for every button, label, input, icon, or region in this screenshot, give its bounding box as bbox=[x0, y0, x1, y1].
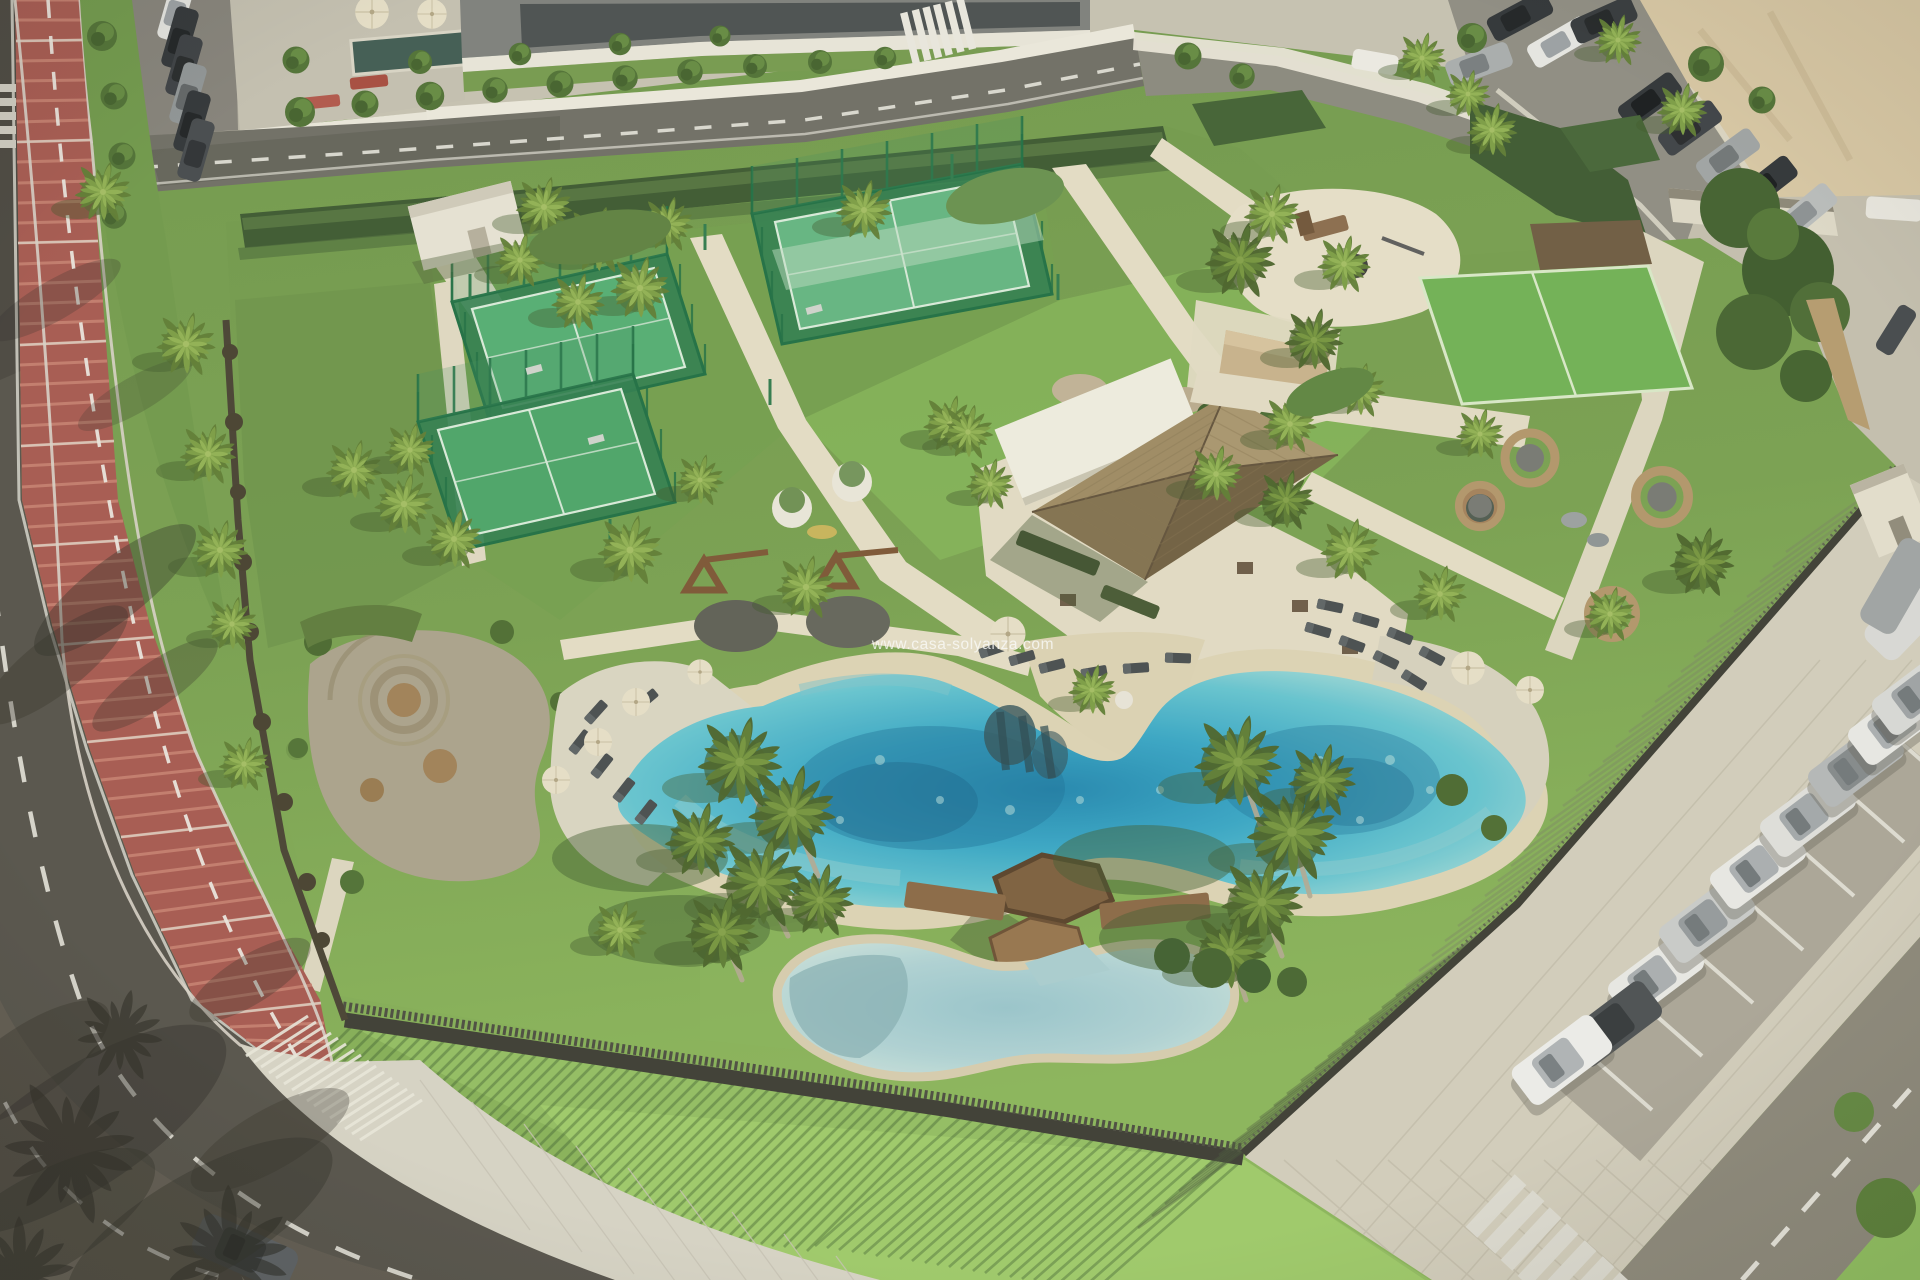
svg-text:www.casa-solyanza.com: www.casa-solyanza.com bbox=[871, 636, 1054, 653]
